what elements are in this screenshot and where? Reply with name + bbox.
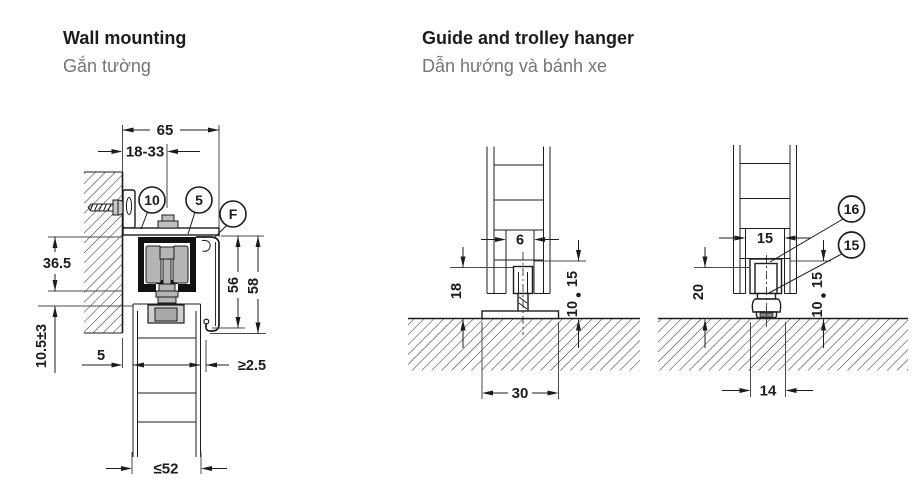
dim-5-label: 5 — [97, 348, 105, 364]
dim-52-label: ≤52 — [154, 461, 179, 478]
dim-56-label: 56 — [226, 277, 242, 293]
dim-bottom-gaps: 5 ≥2.5 — [82, 338, 266, 374]
dim-10-label: 10 — [565, 301, 581, 317]
dim-groove-width: 15 — [719, 231, 811, 247]
floor-section — [658, 319, 908, 371]
trolley-wheel-right — [173, 246, 188, 283]
dim-15-label: 15 — [565, 271, 581, 287]
callout-guide-block: 16 — [844, 201, 860, 217]
callout-track: 5 — [195, 192, 203, 208]
trolley-wheel-left — [146, 246, 161, 283]
door-panel — [133, 304, 201, 457]
groove-guide-diagram: 6 18 15 10 3 — [408, 147, 640, 403]
callout-fascia: F — [229, 206, 238, 222]
dim-groove-width: 6 — [481, 233, 559, 249]
dim-14-label: 14 — [760, 383, 777, 400]
dim-door-thickness: ≤52 — [106, 452, 227, 478]
diagram-canvas: 65 18-33 — [0, 0, 914, 502]
floor-section — [408, 319, 640, 371]
suspension-bolt — [158, 215, 178, 228]
technical-drawing-page: Wall mounting Gắn tường Guide and trolle… — [0, 0, 914, 502]
dim-15-engagement-label: 15 — [810, 272, 826, 288]
callout-bracket: 10 — [144, 192, 160, 208]
fascia-profile — [196, 237, 219, 331]
dim-10-5-label: 10.5±3 — [34, 324, 50, 368]
wall-mounting-diagram: 65 18-33 — [34, 122, 266, 478]
dim-15-groove-label: 15 — [757, 231, 773, 247]
dim-10-label: 10 — [810, 301, 826, 317]
dim-2-5-label: ≥2.5 — [238, 358, 266, 374]
dim-overall-width: 65 — [123, 122, 220, 139]
dim-20-label: 20 — [691, 284, 707, 300]
wall-section — [84, 172, 123, 333]
dim-18-33-label: 18-33 — [126, 144, 164, 161]
dim-58-label: 58 — [246, 278, 262, 294]
roller-guide-diagram: 15 20 15 10 — [658, 145, 908, 400]
track-profile — [138, 237, 196, 303]
dim-bracket-adjust: 18-33 — [98, 144, 200, 161]
callout-floor-roller: 15 — [844, 237, 860, 253]
dim-30-label: 30 — [512, 385, 529, 402]
dim-6-label: 6 — [516, 233, 524, 249]
dim-36-5-label: 36.5 — [43, 256, 71, 272]
dim-65-label: 65 — [157, 122, 174, 139]
dim-18-label: 18 — [449, 283, 465, 299]
